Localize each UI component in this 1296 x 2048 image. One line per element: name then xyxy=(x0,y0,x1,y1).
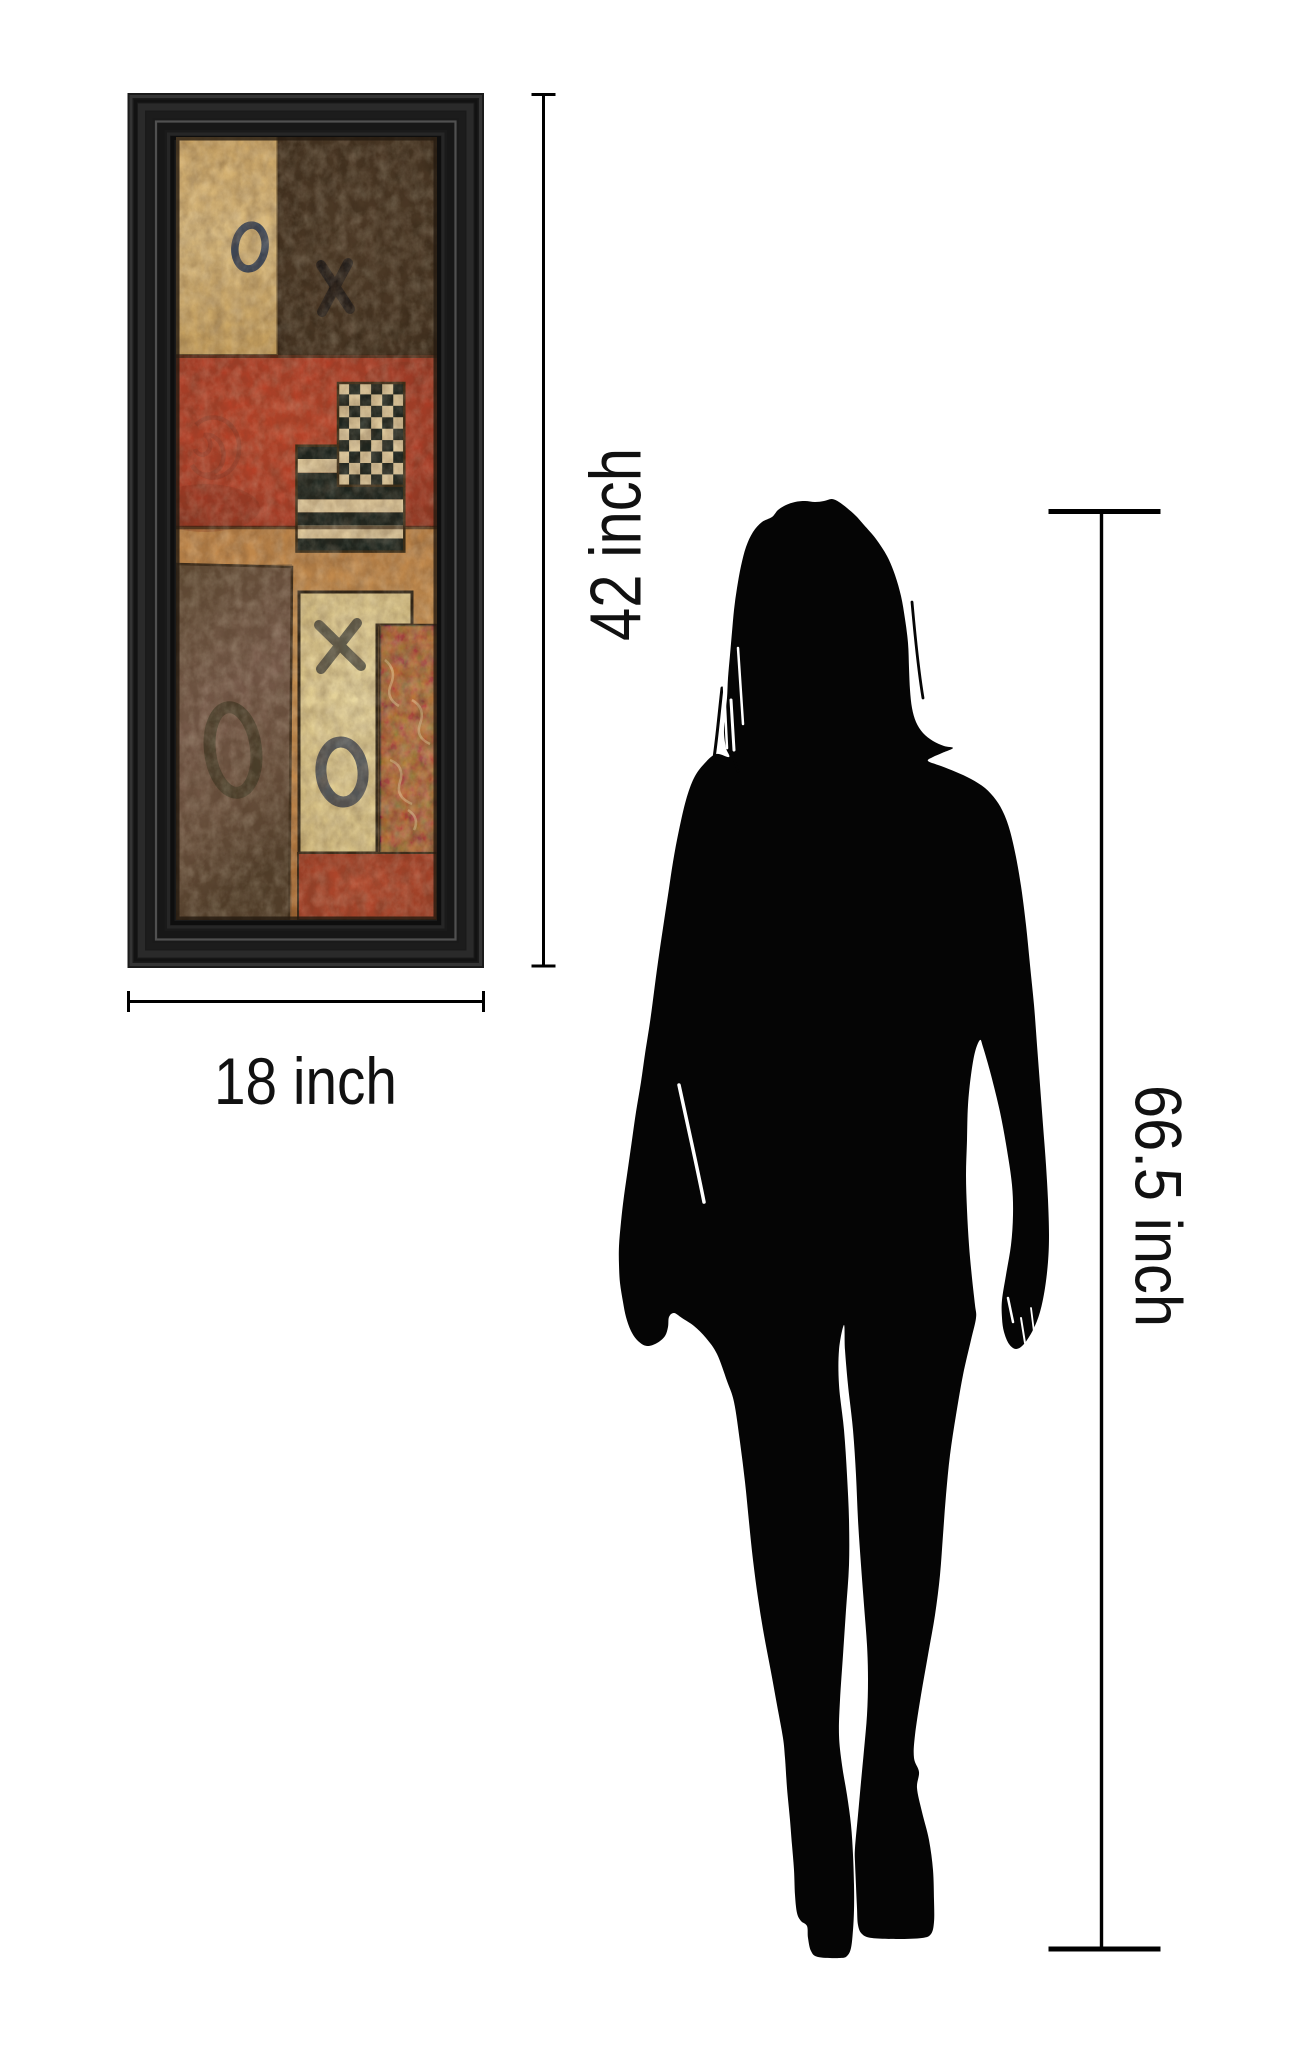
svg-text:18 inch: 18 inch xyxy=(214,1044,397,1118)
svg-text:42 inch: 42 inch xyxy=(577,448,657,641)
svg-text:66.5 inch: 66.5 inch xyxy=(1122,1085,1196,1327)
